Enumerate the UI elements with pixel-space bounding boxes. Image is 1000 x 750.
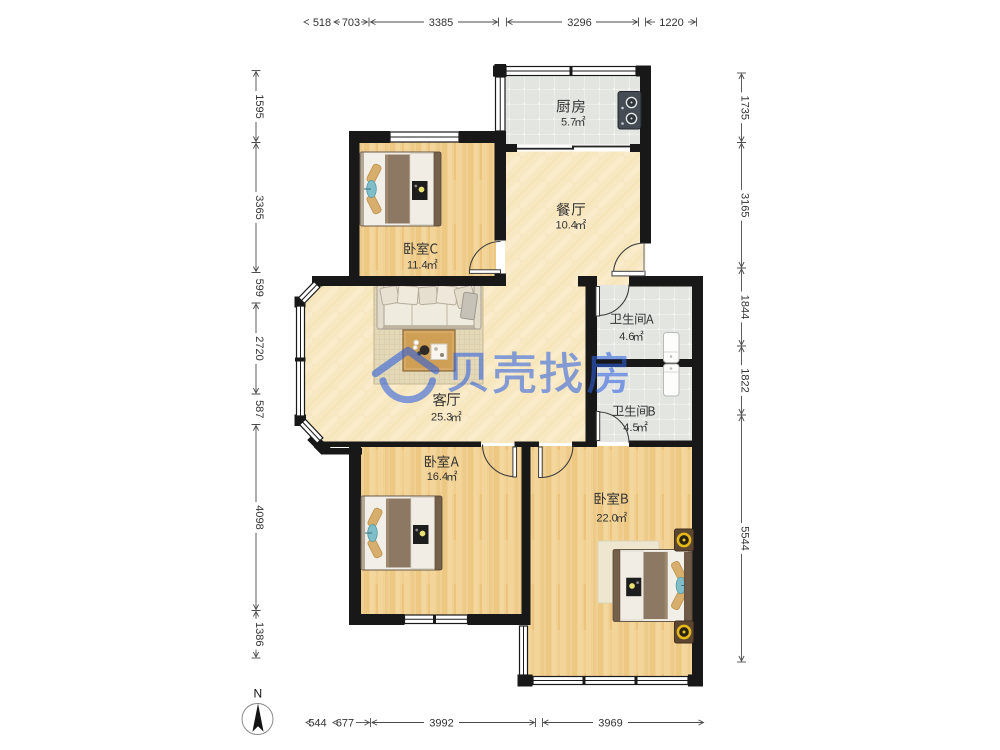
svg-text:3385: 3385 (429, 17, 453, 29)
svg-text:587: 587 (253, 400, 265, 418)
svg-text:5.7: 5.7 (561, 116, 576, 128)
svg-text:1735: 1735 (739, 96, 751, 120)
svg-text:3165: 3165 (739, 193, 751, 217)
svg-text:10.4: 10.4 (556, 219, 577, 231)
svg-text:677: 677 (336, 718, 354, 730)
svg-text:1386: 1386 (253, 622, 265, 646)
svg-text:5544: 5544 (739, 526, 751, 550)
svg-text:1595: 1595 (253, 94, 265, 118)
svg-text:11.4: 11.4 (407, 259, 428, 271)
svg-text:3992: 3992 (429, 718, 453, 730)
svg-text:16.4: 16.4 (427, 471, 448, 483)
svg-text:25.3: 25.3 (431, 412, 452, 424)
svg-text:544: 544 (308, 718, 326, 730)
svg-text:1844: 1844 (739, 295, 751, 319)
svg-text:518: 518 (313, 17, 331, 29)
svg-text:599: 599 (253, 279, 265, 297)
svg-text:3969: 3969 (598, 718, 622, 730)
svg-text:N: N (253, 686, 262, 700)
svg-text:3296: 3296 (567, 17, 591, 29)
svg-text:4098: 4098 (253, 505, 265, 529)
svg-text:4.6: 4.6 (619, 331, 634, 343)
svg-text:22.0: 22.0 (596, 512, 617, 524)
svg-text:2720: 2720 (253, 336, 265, 360)
svg-text:4.5: 4.5 (623, 422, 638, 434)
svg-text:3365: 3365 (253, 195, 265, 219)
svg-text:1822: 1822 (739, 368, 751, 392)
svg-text:703: 703 (342, 17, 360, 29)
svg-text:1220: 1220 (659, 17, 683, 29)
